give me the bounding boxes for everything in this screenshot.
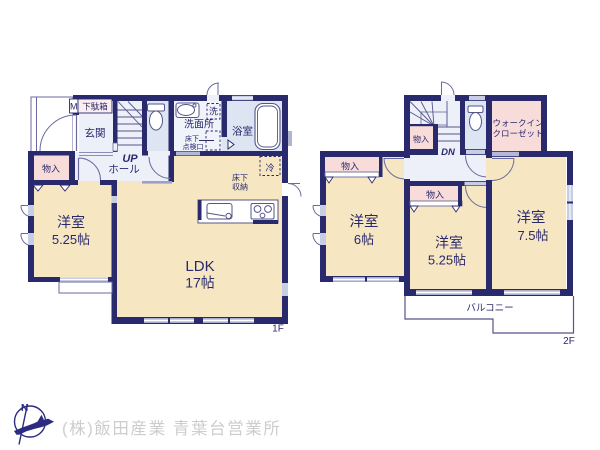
svg-text:M: M [70, 102, 78, 112]
svg-text:クローゼット: クローゼット [492, 129, 543, 139]
svg-text:物入: 物入 [42, 163, 60, 174]
svg-text:ホール: ホール [108, 164, 140, 176]
svg-text:(株)飯田産業 青葉台営業所: (株)飯田産業 青葉台営業所 [62, 419, 281, 438]
svg-text:物入: 物入 [341, 161, 359, 172]
svg-text:DN: DN [441, 147, 456, 158]
svg-text:5.25帖: 5.25帖 [52, 232, 90, 247]
svg-text:6帖: 6帖 [354, 232, 374, 247]
svg-text:点検口: 点検口 [183, 142, 204, 151]
svg-text:洗: 洗 [209, 106, 218, 117]
svg-text:7.5帖: 7.5帖 [517, 228, 548, 243]
svg-text:玄関: 玄関 [85, 127, 106, 140]
svg-text:床下: 床下 [232, 173, 248, 183]
svg-text:洋室: 洋室 [517, 210, 546, 227]
svg-text:ウォークイン: ウォークイン [492, 118, 543, 128]
svg-text:洋室: 洋室 [435, 235, 463, 251]
svg-text:洗面所: 洗面所 [184, 119, 214, 131]
svg-text:下駄箱: 下駄箱 [82, 102, 108, 112]
svg-text:浴室: 浴室 [232, 125, 253, 138]
svg-text:5.25帖: 5.25帖 [428, 253, 466, 268]
svg-text:物入: 物入 [413, 134, 429, 144]
svg-text:物入: 物入 [426, 189, 444, 200]
svg-text:2F: 2F [563, 336, 575, 347]
svg-text:洋室: 洋室 [350, 214, 379, 231]
svg-text:17帖: 17帖 [185, 275, 215, 291]
svg-text:洋室: 洋室 [57, 214, 85, 230]
svg-text:床下: 床下 [185, 134, 199, 143]
svg-text:1F: 1F [272, 324, 284, 335]
svg-text:バルコニー: バルコニー [466, 303, 513, 314]
svg-text:収納: 収納 [232, 182, 248, 192]
svg-text:N: N [21, 403, 28, 414]
svg-text:LDK: LDK [185, 258, 214, 275]
svg-text:冷: 冷 [265, 162, 274, 173]
